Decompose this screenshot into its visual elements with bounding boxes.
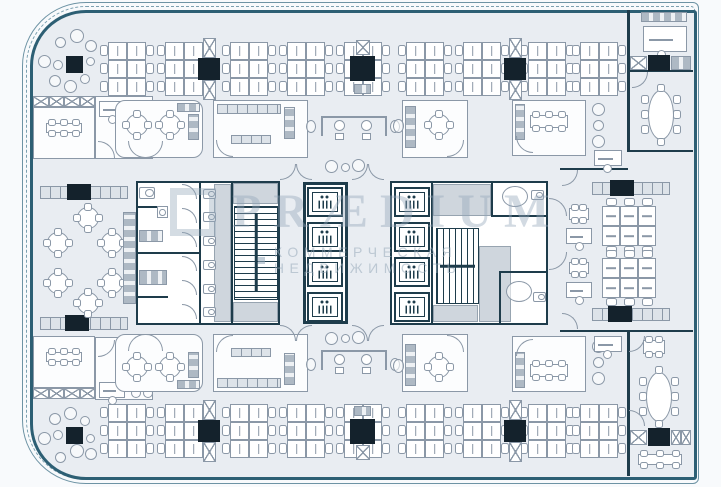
- dcell: [165, 78, 184, 96]
- chair: [382, 443, 390, 454]
- smid-h: [440, 265, 474, 268]
- post: [321, 350, 323, 370]
- chair: [571, 217, 579, 224]
- chair: [146, 443, 154, 454]
- cabinet-x-row: [630, 56, 647, 70]
- chair: [532, 111, 540, 118]
- service-shaft: [479, 246, 511, 322]
- chair: [501, 443, 509, 454]
- dcell: [165, 404, 184, 422]
- chair: [336, 425, 344, 436]
- dcell: [249, 404, 268, 422]
- meeting-table: [43, 348, 85, 366]
- chair: [657, 84, 665, 92]
- chair: [54, 228, 62, 236]
- dcell: [638, 258, 656, 278]
- chair: [558, 374, 566, 381]
- dcell: [165, 60, 184, 78]
- desk-cluster: [222, 38, 276, 100]
- chair: [268, 63, 276, 74]
- chair: [336, 407, 344, 418]
- xcell: [630, 430, 647, 445]
- shaft-x: [203, 442, 216, 462]
- dcell: [306, 60, 325, 78]
- dcell: [184, 78, 203, 96]
- chair: [455, 63, 463, 74]
- chair: [146, 45, 154, 56]
- chair: [43, 239, 51, 247]
- desk-cluster: [598, 250, 660, 306]
- toilet-icon: [203, 212, 216, 222]
- chair: [435, 110, 443, 118]
- chair: [572, 81, 580, 92]
- elevator: [307, 292, 343, 322]
- desk-cluster: [455, 400, 509, 462]
- dcell: [463, 42, 482, 60]
- stool: [593, 120, 604, 131]
- chair: [545, 111, 553, 118]
- chair: [95, 214, 103, 222]
- xcell: [64, 388, 80, 399]
- cabinet-row: [123, 212, 136, 304]
- xcell: [49, 96, 65, 107]
- stool: [70, 444, 84, 458]
- chair: [65, 279, 73, 287]
- dcell: [638, 226, 656, 246]
- dcell: [127, 42, 146, 60]
- dcell: [580, 440, 599, 458]
- tbl-oval: [646, 372, 672, 422]
- dcell: [127, 78, 146, 96]
- chair: [618, 81, 626, 92]
- structural-column: [66, 56, 83, 73]
- dcell: [463, 422, 482, 440]
- chair: [144, 363, 152, 371]
- stool: [38, 55, 51, 68]
- door-arc: [280, 164, 296, 180]
- office-desk: [566, 228, 592, 244]
- dcell: [184, 440, 203, 458]
- cabinet-row: [515, 352, 525, 388]
- round-meeting-table: [43, 268, 73, 298]
- lift-dot: [408, 265, 411, 268]
- chair: [657, 138, 665, 146]
- toilet-icon: [203, 189, 216, 199]
- dcell: [425, 404, 444, 422]
- dcell: [580, 60, 599, 78]
- stool: [70, 29, 84, 43]
- chair: [641, 95, 649, 104]
- chair: [398, 407, 406, 418]
- chair: [65, 239, 73, 247]
- structural-column: [610, 180, 634, 196]
- chair: [100, 407, 108, 418]
- chair: [545, 374, 553, 381]
- chair: [279, 81, 287, 92]
- post: [385, 116, 387, 136]
- elevator: [307, 257, 343, 287]
- floor-plan-canvas: PRÆDIUM КОММЕРЧЕСКАЯ НЕДВИЖИМОСТЬ: [0, 0, 721, 487]
- chair: [572, 407, 580, 418]
- door-arc: [368, 325, 384, 341]
- chair: [444, 63, 452, 74]
- dcell: [306, 78, 325, 96]
- chair: [279, 425, 287, 436]
- structural-column: [350, 56, 375, 81]
- chair: [673, 95, 681, 104]
- stool: [80, 416, 90, 426]
- chair: [673, 110, 681, 119]
- chair: [177, 363, 185, 371]
- meeting-table: [527, 360, 571, 381]
- chair: [336, 81, 344, 92]
- chair: [166, 352, 174, 360]
- chair: [618, 425, 626, 436]
- lift-dot: [408, 230, 411, 233]
- dcell: [620, 206, 638, 226]
- dcell: [425, 440, 444, 458]
- bsq: [335, 367, 344, 374]
- dcell: [602, 278, 620, 298]
- stool: [55, 37, 66, 48]
- chair: [133, 374, 141, 382]
- desk-cluster: [100, 400, 154, 462]
- dcell: [230, 60, 249, 78]
- sink-icon: [157, 206, 168, 218]
- wall: [136, 252, 199, 254]
- desk-cluster: [520, 400, 574, 462]
- xcell: [671, 430, 681, 445]
- structural-column: [608, 306, 632, 322]
- chair: [73, 299, 81, 307]
- round-meeting-table: [73, 288, 103, 318]
- counter: [231, 135, 271, 144]
- wall: [199, 181, 201, 325]
- stool: [306, 120, 316, 133]
- chair: [641, 125, 649, 134]
- chair: [133, 132, 141, 140]
- dcell: [230, 440, 249, 458]
- dcell: [547, 60, 566, 78]
- chair: [655, 336, 663, 343]
- wc-c: [208, 309, 215, 316]
- dcell: [127, 422, 146, 440]
- chair: [545, 360, 553, 367]
- stool: [85, 40, 97, 52]
- rail: [321, 350, 387, 352]
- wall: [231, 181, 233, 325]
- toilet-icon: [203, 284, 216, 294]
- cabinet-row: [188, 352, 199, 378]
- chair: [84, 203, 92, 211]
- chair: [268, 45, 276, 56]
- lift-ic: [319, 270, 332, 278]
- chair: [446, 363, 454, 371]
- stool: [506, 281, 532, 302]
- xcell: [80, 96, 96, 107]
- chair: [398, 63, 406, 74]
- stool: [592, 103, 605, 116]
- stool: [341, 163, 350, 172]
- chair: [572, 63, 580, 74]
- dcell: [165, 42, 184, 60]
- chair: [84, 310, 92, 318]
- wc-c: [536, 192, 543, 199]
- chair: [222, 407, 230, 418]
- oval-meeting-table: [639, 366, 679, 428]
- chair: [157, 81, 165, 92]
- dcell: [127, 404, 146, 422]
- chair: [618, 443, 626, 454]
- stool: [325, 332, 338, 345]
- chair: [672, 450, 680, 457]
- chair: [72, 348, 80, 355]
- chair: [222, 443, 230, 454]
- chair: [325, 63, 333, 74]
- xcell: [681, 430, 691, 445]
- chair: [177, 121, 185, 129]
- chair: [325, 443, 333, 454]
- dcell: [249, 78, 268, 96]
- chair: [424, 363, 432, 371]
- counter: [231, 348, 271, 357]
- chair: [579, 271, 587, 278]
- chair: [624, 198, 635, 206]
- chair: [671, 377, 679, 386]
- chair: [222, 425, 230, 436]
- stool: [38, 432, 51, 445]
- structural-column: [504, 58, 526, 80]
- chair: [157, 443, 165, 454]
- bsq: [362, 133, 371, 140]
- xcell: [49, 388, 65, 399]
- chair: [97, 279, 105, 287]
- chair: [455, 425, 463, 436]
- chair: [444, 407, 452, 418]
- stool: [306, 358, 316, 371]
- chair: [122, 121, 130, 129]
- shaft-x: [356, 40, 370, 55]
- cabinet-row: [139, 230, 163, 242]
- bst: [361, 354, 372, 365]
- dcell: [249, 60, 268, 78]
- chair: [642, 298, 653, 306]
- chair: [73, 214, 81, 222]
- smid-v: [255, 214, 258, 291]
- chair: [618, 45, 626, 56]
- chair: [222, 81, 230, 92]
- dcell: [463, 78, 482, 96]
- lift-dot: [321, 230, 324, 233]
- dcell: [528, 42, 547, 60]
- bst: [334, 120, 345, 131]
- shaft-x: [509, 400, 522, 420]
- wc-c: [208, 191, 215, 198]
- cabinet-row: [354, 84, 371, 94]
- wall: [560, 330, 628, 332]
- chair: [645, 351, 653, 358]
- chair: [97, 239, 105, 247]
- lift-ic: [406, 200, 419, 208]
- chair: [558, 111, 566, 118]
- chair: [48, 359, 56, 366]
- chair: [435, 352, 443, 360]
- meeting-table: [566, 258, 592, 278]
- chair: [532, 374, 540, 381]
- chair: [444, 443, 452, 454]
- stool: [49, 413, 61, 425]
- dcell: [306, 42, 325, 60]
- chair: [655, 420, 663, 428]
- structural-column: [648, 428, 670, 446]
- dcell: [602, 226, 620, 246]
- dcell: [406, 404, 425, 422]
- chair: [382, 45, 390, 56]
- chair: [133, 110, 141, 118]
- dcell: [547, 404, 566, 422]
- toilet-icon: [531, 190, 544, 200]
- chair: [642, 198, 653, 206]
- d1chair: [575, 296, 584, 305]
- shaft-x: [203, 80, 216, 100]
- dcell: [620, 226, 638, 246]
- chair: [558, 125, 566, 132]
- dcell: [482, 60, 501, 78]
- elevator: [394, 292, 430, 322]
- dcell: [230, 404, 249, 422]
- chair: [222, 45, 230, 56]
- dcell: [482, 404, 501, 422]
- chair: [571, 204, 579, 211]
- chair: [446, 121, 454, 129]
- chair: [435, 132, 443, 140]
- dcell: [425, 60, 444, 78]
- d1chair: [603, 164, 612, 173]
- chair: [501, 407, 509, 418]
- dcell: [230, 42, 249, 60]
- lift-dot: [408, 195, 411, 198]
- chair: [155, 121, 163, 129]
- dcell: [620, 258, 638, 278]
- dcell: [620, 278, 638, 298]
- meeting-table: [566, 204, 592, 224]
- chair: [501, 81, 509, 92]
- dcell: [528, 78, 547, 96]
- chair: [398, 81, 406, 92]
- stool: [352, 159, 365, 172]
- dcell: [599, 60, 618, 78]
- dcell: [425, 42, 444, 60]
- chair: [325, 81, 333, 92]
- door-arc: [368, 164, 384, 180]
- wall: [136, 296, 168, 298]
- chair: [144, 121, 152, 129]
- bsq: [335, 133, 344, 140]
- dcell: [528, 404, 547, 422]
- cabinet-row: [139, 270, 167, 285]
- chair: [618, 63, 626, 74]
- chair: [279, 407, 287, 418]
- chair: [641, 110, 649, 119]
- round-meeting-table: [122, 352, 152, 382]
- chair: [398, 425, 406, 436]
- xcell: [630, 56, 647, 70]
- desk-cluster: [572, 38, 626, 100]
- desk-cluster: [398, 38, 452, 100]
- chair: [455, 407, 463, 418]
- stool: [593, 357, 604, 368]
- chair: [146, 407, 154, 418]
- dcell: [127, 60, 146, 78]
- dcell: [406, 78, 425, 96]
- elevator: [394, 257, 430, 287]
- chair: [571, 271, 579, 278]
- chair: [455, 81, 463, 92]
- service-shaft: [233, 183, 278, 204]
- stool: [85, 448, 97, 460]
- toilet-icon: [203, 307, 216, 317]
- structural-column: [648, 55, 670, 71]
- chair: [336, 63, 344, 74]
- stool: [341, 334, 350, 343]
- dcell: [287, 440, 306, 458]
- xcell: [80, 388, 96, 399]
- dcell: [249, 42, 268, 60]
- lift-dot: [321, 265, 324, 268]
- chair: [279, 443, 287, 454]
- chair: [398, 443, 406, 454]
- phone-bench: [321, 346, 387, 380]
- staircase: [234, 206, 278, 300]
- chair: [606, 298, 617, 306]
- chair: [54, 250, 62, 258]
- chair: [444, 425, 452, 436]
- meeting-table: [635, 450, 685, 469]
- cabinet-x-row: [671, 430, 691, 445]
- wall: [627, 330, 693, 332]
- chair: [222, 63, 230, 74]
- chair: [95, 299, 103, 307]
- chair: [382, 63, 390, 74]
- stool: [64, 407, 77, 420]
- dcell: [482, 42, 501, 60]
- structural-column: [67, 184, 91, 200]
- dcell: [249, 422, 268, 440]
- chair: [672, 462, 680, 469]
- chair: [146, 425, 154, 436]
- chair: [60, 130, 68, 137]
- dcell: [599, 404, 618, 422]
- chair: [444, 45, 452, 56]
- cabinet-row: [671, 56, 691, 70]
- chair: [325, 425, 333, 436]
- stool: [592, 135, 605, 148]
- chair: [100, 443, 108, 454]
- dcell: [599, 78, 618, 96]
- chair: [279, 63, 287, 74]
- wall: [431, 181, 433, 325]
- dcell: [463, 60, 482, 78]
- d1line: [598, 158, 613, 160]
- cabinet-row: [284, 107, 295, 139]
- chair: [72, 130, 80, 137]
- desk-cluster: [100, 38, 154, 100]
- chair: [579, 204, 587, 211]
- structural-column: [66, 427, 83, 444]
- lift-ic: [406, 270, 419, 278]
- chair: [108, 268, 116, 276]
- chair: [54, 268, 62, 276]
